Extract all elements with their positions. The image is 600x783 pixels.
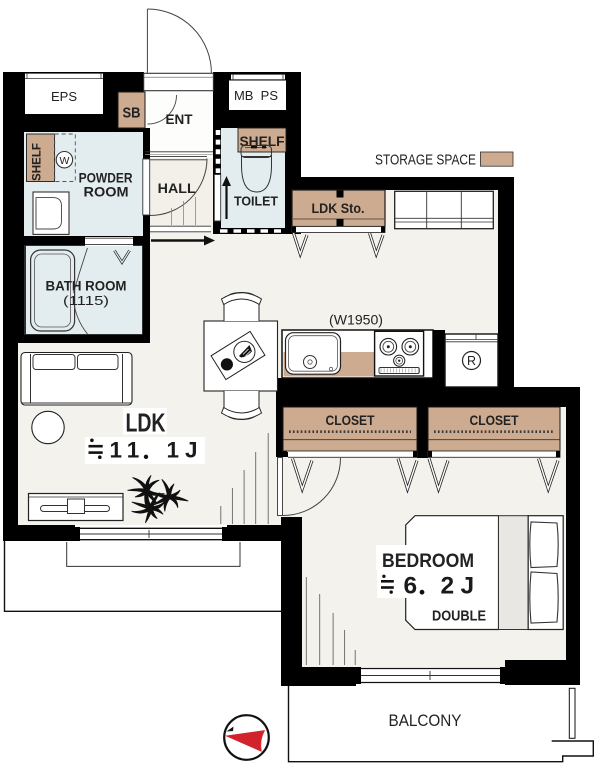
svg-text:CLOSET: CLOSET [326,412,375,428]
svg-text:HALL: HALL [158,181,196,196]
svg-text:ENT: ENT [166,111,193,127]
svg-text:BATH ROOM: BATH ROOM [46,279,127,294]
svg-text:TOILET: TOILET [234,194,278,209]
svg-text:SHELF: SHELF [30,143,44,181]
svg-text:CLOSET: CLOSET [470,412,519,428]
svg-text:LDK Sto.: LDK Sto. [312,200,365,216]
svg-text:R: R [467,354,476,368]
svg-text:SB: SB [123,105,141,122]
svg-text:(1115): (1115) [63,293,109,308]
svg-text:EPS: EPS [51,89,77,104]
svg-text:W: W [59,155,69,167]
svg-text:(W1950): (W1950) [329,313,383,328]
svg-text:BALCONY: BALCONY [389,711,462,730]
svg-text:BEDROOM: BEDROOM [382,550,474,572]
svg-text:ROOM: ROOM [84,184,129,200]
svg-text:DOUBLE: DOUBLE [432,609,486,625]
svg-text:MB PS: MB PS [234,88,278,103]
svg-text:STORAGE SPACE: STORAGE SPACE [375,152,476,169]
svg-text:LDK: LDK [126,410,166,438]
